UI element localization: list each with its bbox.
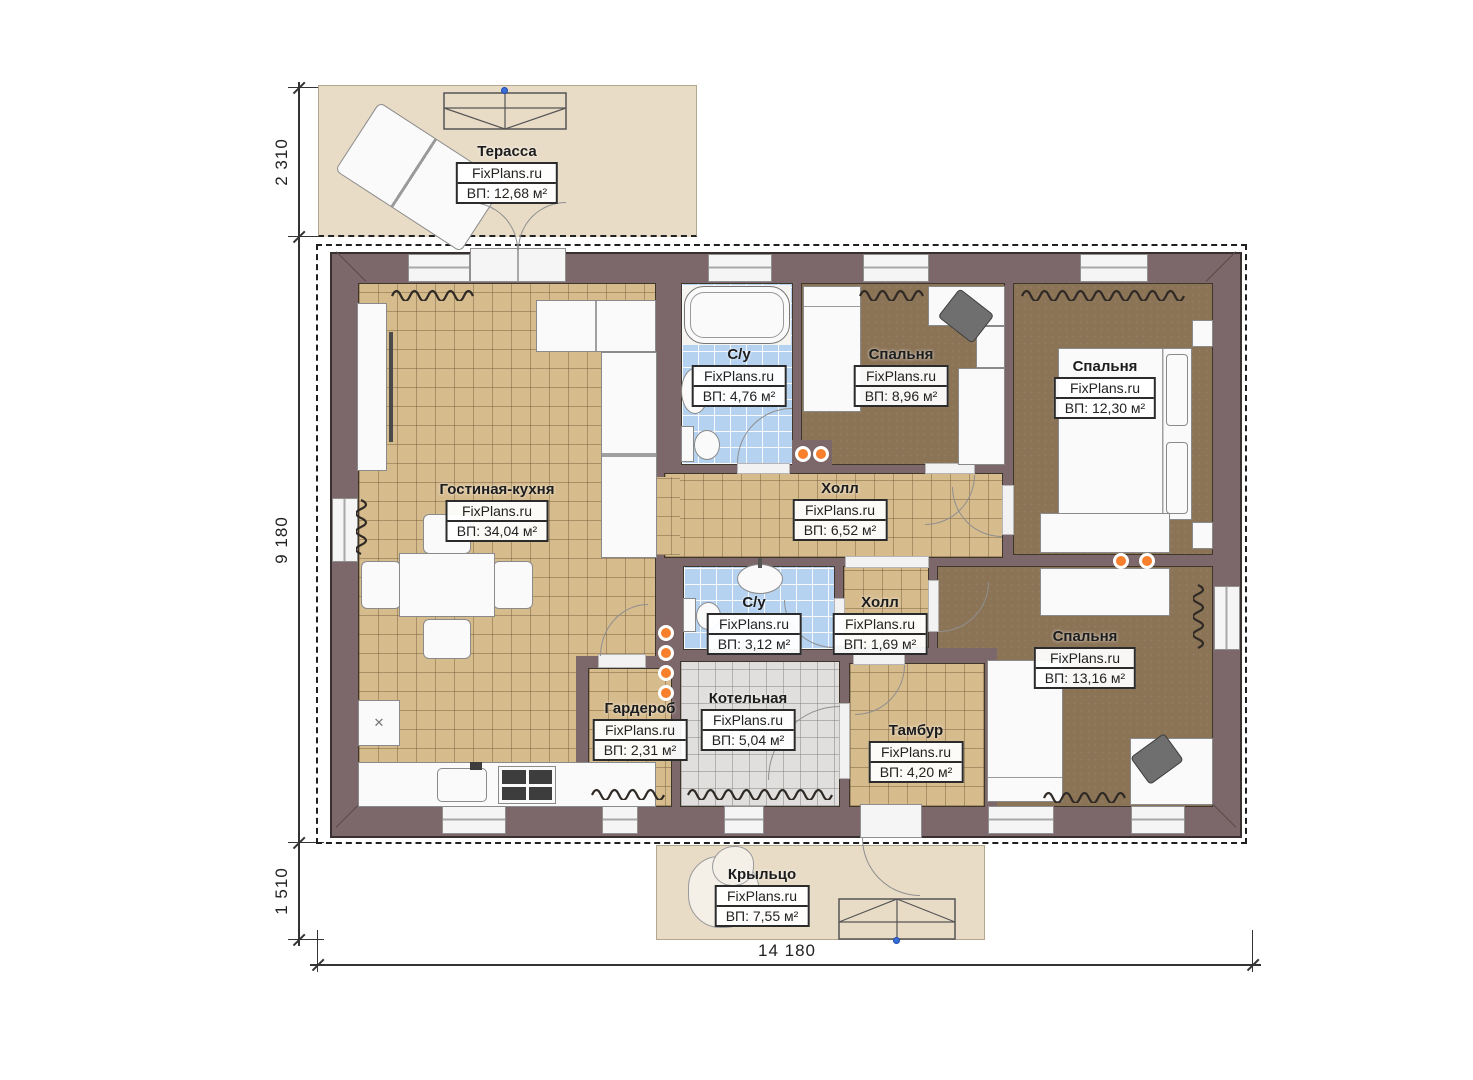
toilet-tank bbox=[683, 598, 696, 632]
toilet-bowl bbox=[694, 430, 720, 460]
light-dot bbox=[798, 449, 808, 459]
light-dot bbox=[661, 628, 671, 638]
door-bath-top bbox=[737, 463, 790, 474]
floor-plan-canvas: 2 310 9 180 1 510 14 180 bbox=[0, 0, 1473, 1080]
fridge: ✕ bbox=[358, 700, 400, 746]
entrance-door bbox=[860, 804, 922, 838]
window-wardrobe-bottom bbox=[602, 806, 638, 834]
wardrobe-cabinet bbox=[1040, 568, 1170, 616]
extension-line bbox=[317, 930, 318, 972]
curtain-squiggle bbox=[1020, 287, 1192, 301]
tv-screen bbox=[389, 332, 393, 442]
dining-chair bbox=[423, 514, 471, 554]
steps-marker-dot bbox=[893, 937, 900, 944]
bed-pillow bbox=[804, 287, 860, 307]
bed-pillow bbox=[1166, 442, 1188, 514]
terrace-steps bbox=[443, 92, 567, 130]
stove-burner bbox=[502, 787, 526, 801]
dim-label-porch-height: 1 510 bbox=[272, 867, 292, 915]
porch-steps bbox=[838, 898, 956, 940]
door-bath-mid bbox=[834, 598, 845, 646]
plant-leaf bbox=[712, 846, 754, 886]
dining-table bbox=[399, 553, 495, 617]
window-boiler-bottom bbox=[724, 806, 764, 834]
curtain-squiggle bbox=[858, 287, 932, 301]
curtain-squiggle bbox=[390, 287, 482, 301]
sink bbox=[681, 368, 709, 414]
dim-label-house-height: 9 180 bbox=[272, 516, 292, 564]
curtain-squiggle bbox=[590, 786, 670, 800]
dining-chair bbox=[423, 619, 471, 659]
door-bedroom-bottom bbox=[928, 580, 939, 632]
dim-label-terrace-height: 2 310 bbox=[272, 138, 292, 186]
sofa-side bbox=[601, 352, 657, 558]
door-bedroom-right bbox=[1002, 485, 1014, 535]
room-hall-small-floor bbox=[843, 566, 929, 648]
curtain-squiggle bbox=[686, 786, 838, 800]
dining-chair bbox=[493, 561, 533, 609]
door-vestibule bbox=[853, 652, 905, 665]
curtain-squiggle bbox=[1042, 789, 1132, 803]
window-bath-top bbox=[708, 254, 772, 282]
bed-single bbox=[803, 286, 861, 412]
stove-burner bbox=[529, 787, 553, 801]
window-bedroom-bottom-1 bbox=[988, 806, 1054, 834]
extension-line bbox=[1252, 930, 1253, 972]
bathtub bbox=[684, 286, 790, 344]
kitchen-faucet bbox=[470, 762, 482, 770]
sink bbox=[737, 564, 783, 594]
dimension-line-horizontal bbox=[310, 964, 1261, 966]
dining-chair bbox=[361, 561, 401, 609]
terrace-door bbox=[470, 248, 566, 282]
toilet-bowl bbox=[696, 602, 721, 630]
curtain-squiggle-vertical bbox=[1193, 583, 1207, 657]
window-living-top bbox=[408, 254, 470, 282]
door-wardrobe bbox=[598, 654, 646, 668]
window-bedroom-bottom-2 bbox=[1131, 806, 1185, 834]
tv-cabinet bbox=[357, 303, 387, 471]
window-living-left bbox=[332, 498, 358, 562]
light-dot bbox=[1116, 556, 1126, 566]
nightstand bbox=[1192, 320, 1213, 347]
light-dot bbox=[661, 688, 671, 698]
sofa-top bbox=[536, 300, 656, 352]
kitchen-sink bbox=[437, 768, 487, 802]
wardrobe-cabinet bbox=[1040, 513, 1170, 553]
wardrobe-cabinet bbox=[958, 368, 1005, 465]
window-kitchen-bottom bbox=[442, 806, 506, 834]
dim-label-house-width: 14 180 bbox=[758, 941, 816, 961]
window-bedroom-top bbox=[863, 254, 929, 282]
extension-line bbox=[288, 939, 324, 940]
stove-burner bbox=[529, 770, 553, 784]
bed-single bbox=[987, 660, 1063, 802]
curtain-squiggle-vertical bbox=[356, 498, 370, 562]
window-bedroom-right-wall bbox=[1214, 586, 1240, 650]
toilet-tank bbox=[681, 426, 694, 462]
stove bbox=[498, 766, 556, 804]
light-dot bbox=[661, 648, 671, 658]
door-boiler bbox=[839, 703, 850, 779]
light-dot bbox=[1142, 556, 1152, 566]
steps-marker-dot bbox=[501, 87, 508, 94]
nightstand bbox=[1192, 522, 1213, 549]
light-dot bbox=[661, 668, 671, 678]
light-dot bbox=[816, 449, 826, 459]
stove-burner bbox=[502, 770, 526, 784]
sink-tap bbox=[758, 558, 762, 568]
bed-pillow bbox=[1166, 354, 1188, 426]
opening-hall-main-hall-small bbox=[845, 556, 929, 568]
dimension-line-vertical bbox=[298, 82, 300, 946]
bathtub-inner bbox=[690, 292, 784, 338]
window-bedroom-right-top bbox=[1080, 254, 1148, 282]
